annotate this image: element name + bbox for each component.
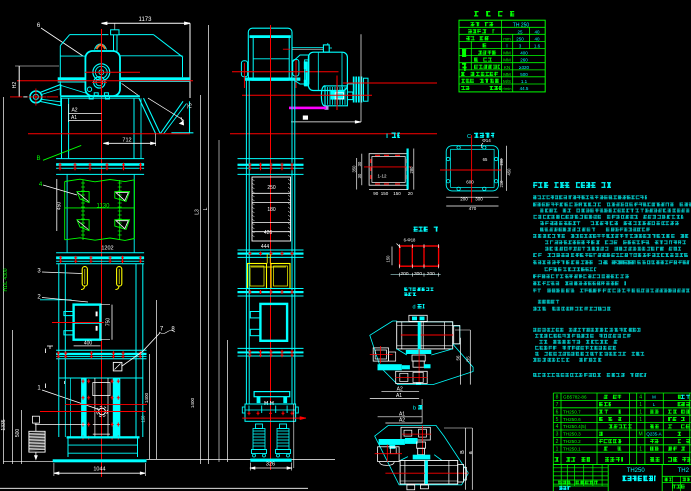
svg-text:L: L [203, 207, 209, 210]
svg-text:TH250.4(5): TH250.4(5) [563, 424, 587, 429]
svg-text:65: 65 [483, 157, 488, 162]
svg-text:750: 750 [105, 318, 111, 327]
svg-text:180: 180 [267, 207, 276, 213]
svg-text:TH250.1: TH250.1 [563, 446, 581, 451]
svg-text:TH 250: TH 250 [513, 22, 530, 28]
svg-text:1.1: 1.1 [521, 79, 528, 84]
svg-text:300: 300 [414, 271, 422, 277]
svg-text:4: 4 [556, 424, 559, 430]
svg-text:8: 8 [556, 395, 559, 401]
svg-text:A2: A2 [71, 108, 77, 114]
svg-text:A1: A1 [396, 393, 402, 399]
svg-text:200: 200 [400, 271, 408, 277]
svg-text:350: 350 [352, 165, 357, 173]
svg-text:H2: H2 [12, 82, 18, 89]
svg-text:1: 1 [639, 409, 642, 415]
svg-text:6: 6 [556, 409, 559, 415]
svg-text:MM: MM [503, 58, 511, 63]
svg-text:426: 426 [264, 230, 273, 236]
svg-text:MM: MM [503, 51, 511, 56]
svg-text:TH2: TH2 [678, 468, 690, 474]
svg-text:1400: 1400 [190, 397, 195, 408]
svg-text:≥320: ≥320 [519, 65, 529, 70]
svg-text:400: 400 [520, 51, 528, 56]
svg-text:r/min: r/min [503, 86, 512, 91]
svg-text:260: 260 [520, 58, 528, 63]
svg-text:M: M [639, 432, 643, 438]
svg-text:M/S: M/S [503, 79, 511, 84]
svg-text:56: 56 [456, 355, 461, 361]
svg-text:Q235-A: Q235-A [646, 432, 661, 437]
svg-text:B: B [36, 156, 40, 162]
svg-text:d: d [412, 305, 415, 311]
svg-text:20: 20 [408, 191, 414, 196]
svg-text:M: M [652, 395, 656, 400]
svg-text:1044: 1044 [93, 467, 105, 473]
svg-text:1: 1 [639, 402, 642, 408]
svg-text:25: 25 [517, 29, 523, 34]
svg-text:1335: 1335 [1, 419, 7, 430]
svg-text:A1: A1 [71, 115, 77, 121]
svg-text:150: 150 [393, 191, 401, 196]
svg-text:TH250.2: TH250.2 [563, 439, 581, 444]
svg-text:450: 450 [57, 202, 63, 211]
svg-text:326: 326 [266, 462, 275, 468]
svg-text:1: 1 [556, 446, 559, 452]
svg-text:7: 7 [556, 402, 559, 408]
svg-text:470: 470 [469, 206, 477, 211]
svg-text:B: B [460, 450, 466, 454]
svg-text:mm: mm [503, 36, 511, 41]
svg-text:KN: KN [504, 65, 510, 70]
svg-text:500: 500 [520, 72, 528, 77]
svg-text:600: 600 [466, 180, 474, 185]
svg-text:1-12: 1-12 [377, 174, 387, 179]
svg-text:75: 75 [188, 103, 194, 109]
svg-text:1400: 1400 [144, 392, 149, 403]
svg-text:MM: MM [503, 72, 511, 77]
svg-text:280: 280 [409, 166, 414, 174]
svg-text:200: 200 [499, 180, 504, 188]
svg-text:TH250.6: TH250.6 [563, 417, 581, 422]
svg-text:200: 200 [427, 271, 435, 277]
svg-text:40: 40 [534, 29, 540, 34]
svg-text:200: 200 [499, 158, 504, 166]
svg-text:I: I [386, 133, 388, 140]
svg-text:450: 450 [507, 168, 512, 176]
svg-text:1: 1 [639, 446, 642, 452]
svg-text:Φ14: Φ14 [482, 138, 491, 143]
svg-text:150: 150 [381, 191, 389, 196]
svg-text:250: 250 [516, 36, 524, 41]
svg-text:1173: 1173 [139, 17, 153, 23]
svg-text:1.6: 1.6 [534, 44, 541, 49]
svg-text:A1: A1 [399, 411, 405, 417]
svg-text:l: l [507, 44, 508, 49]
svg-text:TH250: TH250 [627, 468, 646, 474]
svg-text:1202: 1202 [101, 246, 113, 252]
svg-text:90: 90 [373, 191, 379, 196]
svg-text:4: 4 [639, 395, 642, 401]
svg-text:1130: 1130 [97, 204, 111, 210]
svg-text:5: 5 [556, 417, 559, 423]
svg-text:400: 400 [84, 340, 93, 346]
svg-text:H1/L 4300: H1/L 4300 [3, 268, 9, 291]
svg-text:250: 250 [267, 185, 276, 191]
svg-text:TH250.7: TH250.7 [563, 409, 581, 414]
svg-text:150: 150 [386, 255, 391, 263]
svg-text:6-Φ18: 6-Φ18 [404, 237, 416, 242]
svg-text:3: 3 [556, 432, 559, 438]
svg-text:1: 1 [639, 417, 642, 423]
svg-text:TH250.3: TH250.3 [563, 432, 581, 437]
svg-text:30: 30 [357, 161, 362, 166]
svg-text:L3: L3 [195, 209, 201, 215]
svg-text:444: 444 [261, 244, 270, 250]
svg-text:GB5782-86: GB5782-86 [563, 395, 587, 400]
svg-text:B5: B5 [465, 356, 470, 362]
svg-text:40: 40 [534, 36, 540, 41]
svg-text:b: b [413, 406, 416, 412]
svg-text:30: 30 [357, 173, 362, 178]
svg-text:300: 300 [475, 197, 483, 202]
svg-text:712: 712 [122, 138, 131, 144]
svg-text:200: 200 [460, 197, 468, 202]
svg-text:C: C [467, 134, 471, 140]
svg-text:44.5: 44.5 [520, 86, 529, 91]
svg-text:500: 500 [15, 429, 21, 438]
svg-text:2: 2 [556, 439, 559, 445]
